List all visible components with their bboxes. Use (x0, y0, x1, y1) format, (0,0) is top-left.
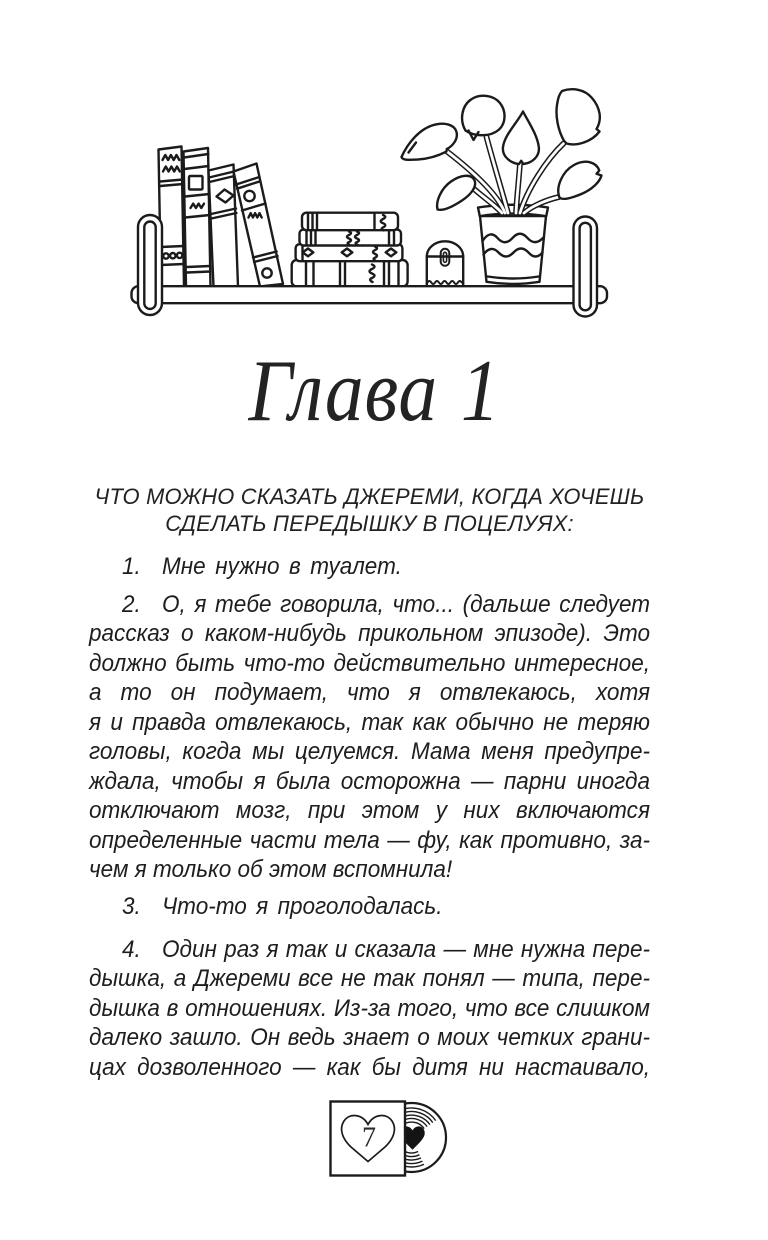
svg-text:7: 7 (362, 1123, 376, 1154)
